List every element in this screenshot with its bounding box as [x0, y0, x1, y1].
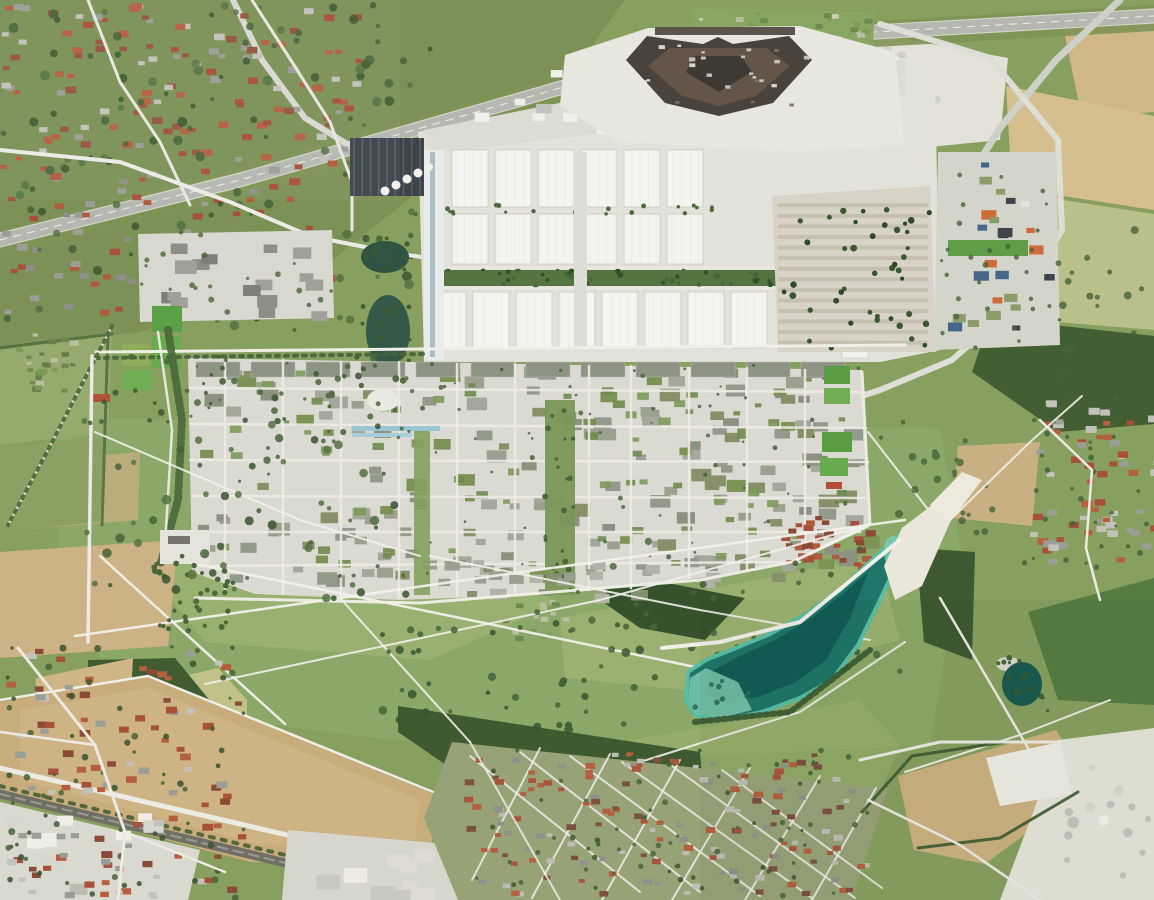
- aerial-orthophoto: [0, 0, 1154, 900]
- east-pitch-2: [824, 388, 850, 404]
- east-pitch-4: [820, 458, 848, 476]
- red-roof-stable: [92, 394, 110, 402]
- screenshot-root: [0, 0, 1154, 900]
- central-cross-aisle: [574, 152, 587, 348]
- east-pitch-1: [824, 366, 850, 384]
- haze-nw: [0, 0, 400, 200]
- tank-5: [425, 163, 433, 171]
- park-plaza: [160, 530, 210, 564]
- plaza-oval: [367, 389, 399, 411]
- blue-canal-2: [352, 433, 412, 437]
- tank-4: [414, 169, 423, 178]
- shade-se: [700, 600, 1154, 900]
- terminal-north-bldg: [655, 27, 795, 35]
- ne-sports-field: [948, 240, 1028, 256]
- west-spine-glass: [430, 152, 435, 357]
- east-pitch-3: [822, 432, 852, 452]
- blue-canal: [352, 426, 440, 431]
- pitch-3: [122, 344, 150, 366]
- park-plaza-bldg: [168, 536, 190, 544]
- pitch-4: [122, 370, 152, 390]
- green-finger-west: [414, 430, 430, 595]
- east-red-bldg: [826, 482, 842, 489]
- tank-3: [403, 175, 412, 184]
